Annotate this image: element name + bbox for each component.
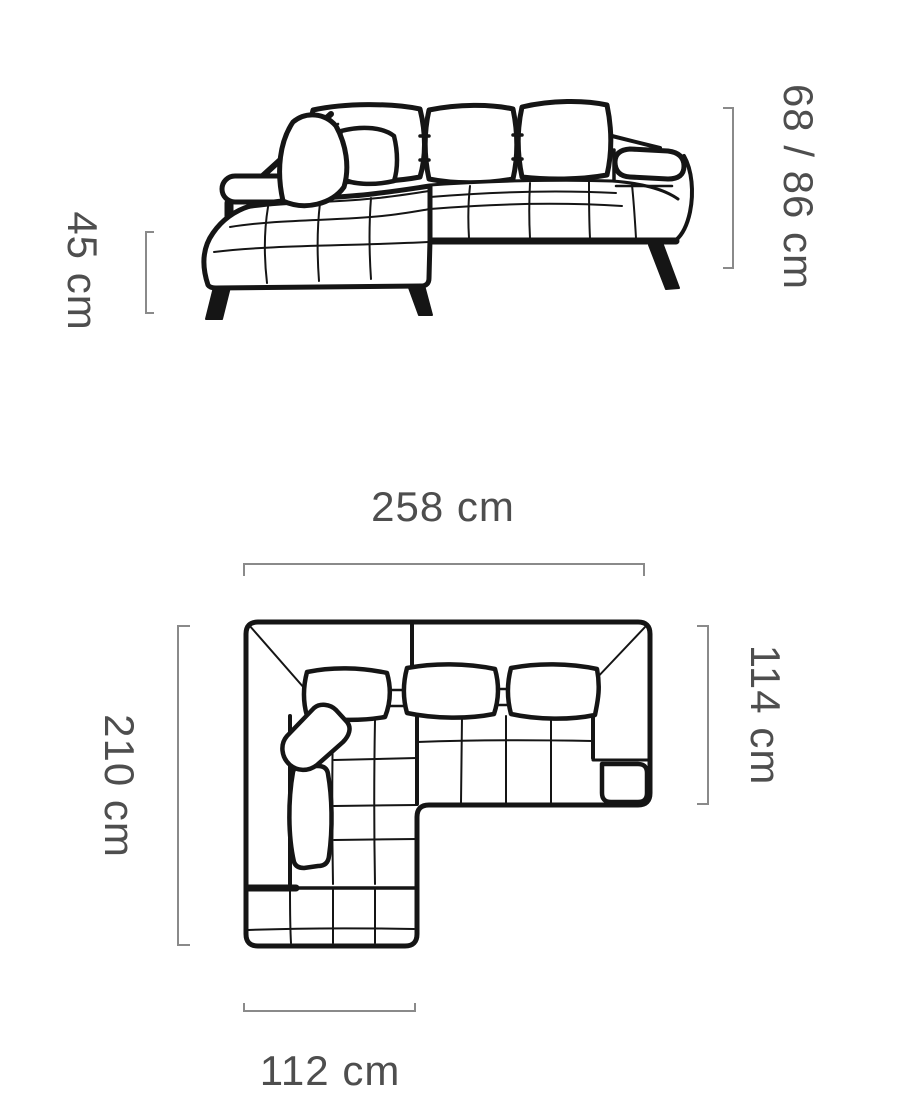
bracket-front-height: [723, 107, 734, 269]
bracket-top-chaise-width: [243, 1003, 416, 1012]
top-chaise-width-label: 112 cm: [260, 1047, 401, 1095]
sofa-top-view-drawing: [240, 615, 660, 955]
top-depth-label: 210 cm: [95, 714, 143, 858]
sofa-dimension-diagram: 68 / 86 cm 45 cm 258 cm 210 cm 114 cm 11…: [0, 0, 900, 1111]
bracket-top-right-depth: [697, 625, 709, 805]
bracket-front-seat-height: [145, 231, 154, 314]
bracket-top-width: [243, 563, 645, 576]
top-right-depth-label: 114 cm: [741, 645, 789, 786]
front-height-label: 68 / 86 cm: [774, 84, 822, 290]
top-width-label: 258 cm: [371, 483, 515, 531]
sofa-front-view-drawing: [195, 88, 725, 335]
top-back-cushions: [304, 664, 599, 720]
front-right-armrest-pad: [615, 149, 684, 179]
bracket-top-depth: [177, 625, 190, 946]
front-seat-height-label: 45 cm: [58, 211, 106, 330]
